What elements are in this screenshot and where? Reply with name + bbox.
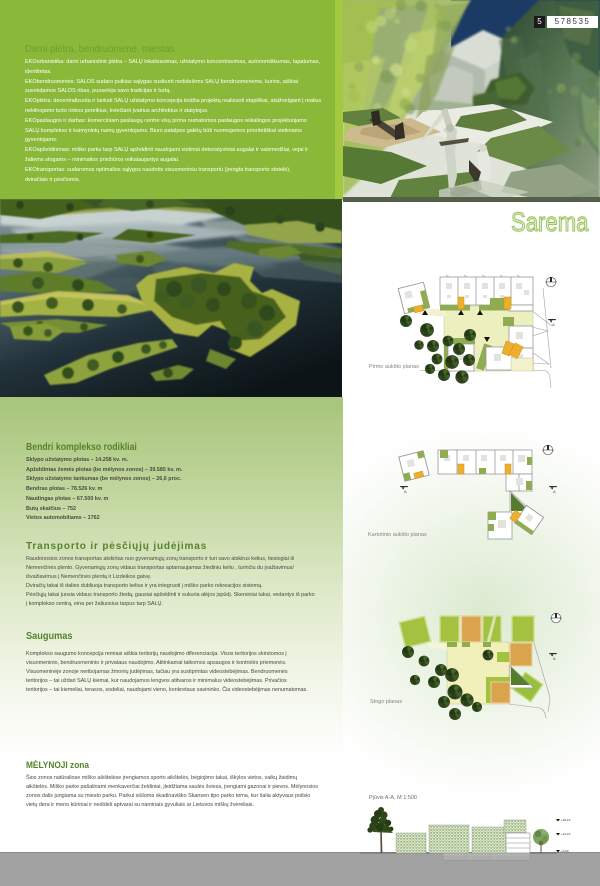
svg-text:+12.10: +12.10 bbox=[561, 832, 571, 836]
svg-text:+0.00: +0.00 bbox=[561, 849, 569, 853]
svg-text:+20.10: +20.10 bbox=[561, 818, 571, 822]
